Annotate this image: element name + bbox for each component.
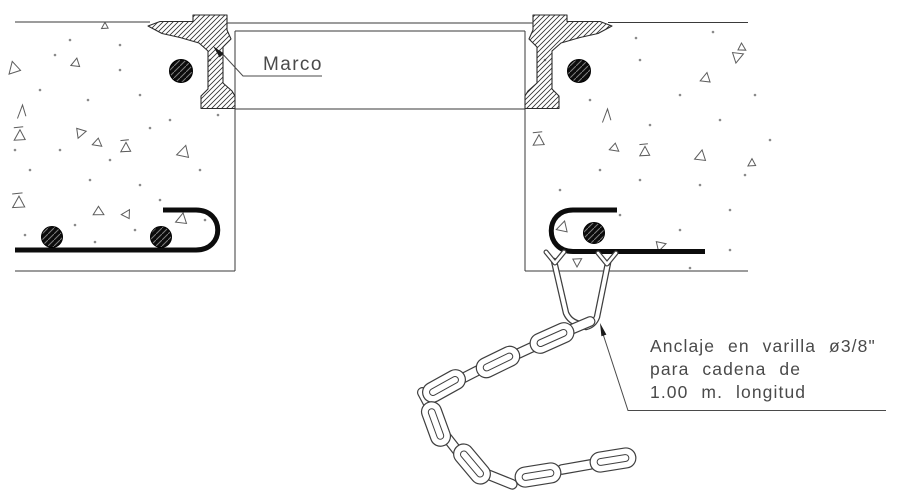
chain-link-face (589, 447, 638, 474)
aggregate-mark (556, 220, 569, 233)
aggregate-dot (87, 99, 90, 102)
anchor-note-line3: 1.00 m. longitud (650, 382, 806, 402)
frame-label: Marco (263, 54, 323, 75)
chain (416, 315, 637, 490)
aggregate-mark (738, 43, 748, 53)
chain-link-face (419, 366, 469, 406)
aggregate-dot (679, 94, 682, 97)
rebar-cross-sections (42, 60, 605, 248)
chain-link-face (514, 462, 563, 489)
aggregate-dot (199, 169, 202, 172)
manhole-frame-detail-drawing: Marco Anclaje en varilla ø3/8" para cade… (0, 0, 900, 497)
aggregate-dot (59, 149, 62, 152)
aggregate-mark (121, 207, 133, 219)
aggregate-dot (109, 159, 112, 162)
aggregate-dot (699, 184, 702, 187)
aggregate-mark (102, 22, 109, 28)
aggregate-mark (91, 206, 104, 219)
aggregate-dot (754, 94, 757, 97)
aggregate-dot (744, 174, 747, 177)
aggregate-mark (639, 144, 649, 156)
aggregate-dot (689, 267, 692, 270)
aggregate-mark (695, 149, 708, 161)
aggregate-dot (159, 199, 162, 202)
aggregate-dot (119, 44, 122, 47)
rebar-section-dot (568, 60, 591, 83)
anchor-leader-arrowhead-icon (600, 323, 606, 336)
anchor-rod-left-leg-fill (554, 261, 580, 324)
aggregate-dot (139, 94, 142, 97)
aggregate-mark (176, 212, 189, 224)
aggregate-mark (120, 140, 130, 152)
aggregate-mark (71, 57, 81, 67)
aggregate-dot (639, 59, 642, 62)
chain-link-face (473, 343, 523, 381)
aggregate-mark (700, 72, 711, 83)
aggregate-dot (94, 241, 97, 244)
aggregate-mark (608, 143, 619, 154)
aggregate-dot (599, 169, 602, 172)
aggregate-dot (89, 179, 92, 182)
chain-link-face (419, 399, 454, 449)
aggregate-dot (54, 54, 57, 57)
rebar-hook-right (551, 210, 705, 252)
aggregate-mark (17, 105, 25, 119)
aggregate-dot (149, 127, 152, 130)
aggregate-dot (134, 229, 137, 232)
aggregate-dot (74, 224, 77, 227)
aggregate-dot (619, 214, 622, 217)
aggregate-mark (602, 109, 610, 123)
aggregate-dot (679, 229, 682, 232)
rebar-section-dot (42, 227, 63, 248)
aggregate-mark (573, 259, 582, 267)
anchor-note-line2: para cadena de (650, 359, 801, 379)
aggregate-dot (649, 124, 652, 127)
rebar-section-dot (584, 223, 605, 244)
aggregate-dot (719, 119, 722, 122)
concrete-section-lines (15, 22, 748, 271)
aggregate-mark (731, 52, 744, 64)
aggregate-mark (12, 193, 25, 208)
aggregate-dot (24, 234, 27, 237)
aggregate-dot (559, 189, 562, 192)
rebar-section-dot (170, 60, 193, 83)
aggregate-dot (217, 114, 220, 117)
aggregate-dot (712, 31, 715, 34)
frame-profile-left (148, 15, 235, 109)
aggregate-dot (635, 37, 638, 40)
aggregate-dot (119, 69, 122, 72)
aggregate-dot (589, 99, 592, 102)
aggregate-dot (204, 219, 207, 222)
concrete-aggregate-texture (6, 22, 771, 269)
aggregate-dot (769, 139, 772, 142)
aggregate-dot (139, 184, 142, 187)
aggregate-dot (14, 149, 17, 152)
rebar-section-dot (151, 227, 172, 248)
aggregate-mark (74, 128, 87, 140)
aggregate-mark (91, 138, 102, 149)
aggregate-mark (14, 127, 25, 140)
technical-drawing-canvas: Marco Anclaje en varilla ø3/8" para cade… (0, 0, 900, 497)
chain-link-face (527, 320, 577, 357)
anchor-rod (546, 252, 616, 327)
aggregate-dot (69, 39, 72, 42)
aggregate-mark (748, 159, 756, 166)
chain-link-face (450, 440, 495, 488)
aggregate-mark (177, 144, 192, 158)
aggregate-dot (729, 249, 732, 252)
aggregate-mark (533, 132, 544, 145)
aggregate-dot (29, 169, 32, 172)
aggregate-dot (639, 179, 642, 182)
aggregate-mark (6, 60, 21, 74)
aggregate-dot (169, 119, 172, 122)
frame-profile-right (525, 15, 612, 109)
anchor-note-line1: Anclaje en varilla ø3/8" (650, 336, 876, 356)
aggregate-dot (729, 209, 732, 212)
aggregate-dot (39, 89, 42, 92)
